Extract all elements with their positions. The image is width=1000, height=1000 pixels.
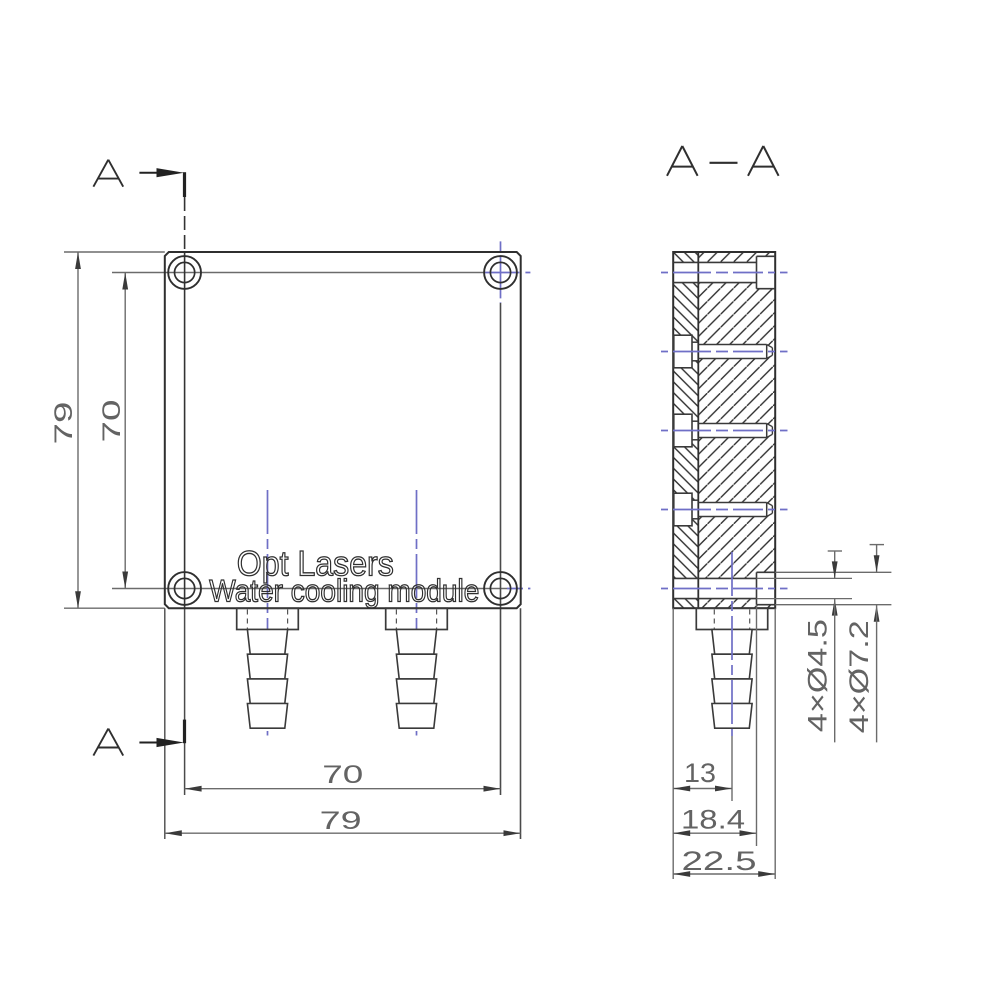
svg-text:18.4: 18.4 xyxy=(681,804,745,834)
svg-text:70: 70 xyxy=(322,761,363,789)
svg-text:13: 13 xyxy=(684,758,716,788)
svg-text:4×Ø4.5: 4×Ø4.5 xyxy=(803,619,833,732)
svg-text:79: 79 xyxy=(320,807,362,835)
svg-text:22.5: 22.5 xyxy=(682,846,757,876)
svg-text:Water cooling module: Water cooling module xyxy=(209,573,479,609)
svg-text:79: 79 xyxy=(50,402,78,445)
svg-text:4×Ø7.2: 4×Ø7.2 xyxy=(844,620,874,733)
svg-text:70: 70 xyxy=(98,400,126,443)
